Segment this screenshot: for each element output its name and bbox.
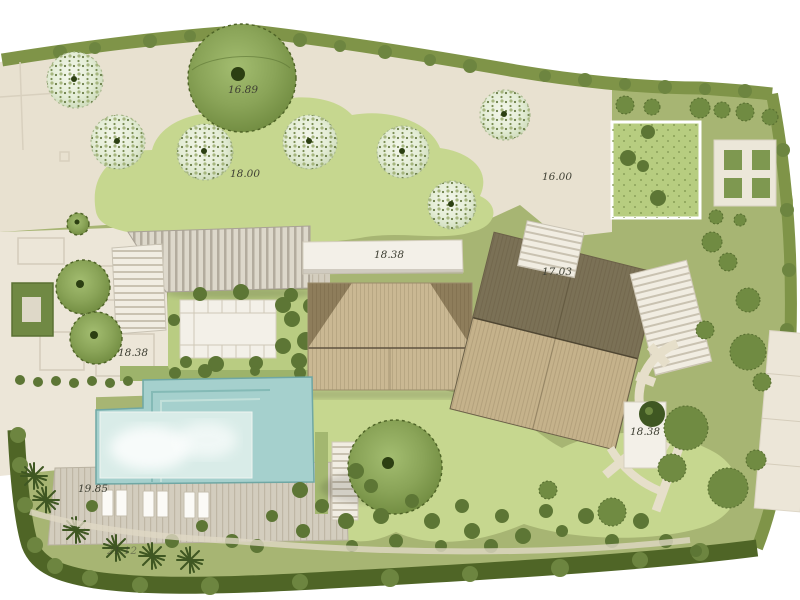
elevation-label-upper-lawn: 18.00	[230, 168, 260, 180]
square-planter	[12, 283, 53, 336]
specimen-tree-north	[188, 24, 296, 132]
site-plan-drawing: 16.89 18.00 16.00 18.38 17.03 18.38 18.3…	[0, 0, 800, 600]
pergola-steps	[112, 244, 166, 334]
courtyard-seating	[180, 300, 276, 358]
elevation-label-west-court: 18.38	[118, 347, 148, 359]
main-house-roof	[308, 283, 472, 399]
parterre-garden	[714, 140, 776, 206]
elevation-label-gravel-court: 16.00	[542, 171, 572, 183]
elevation-label-south-path: 21.12	[106, 545, 137, 557]
elevation-label-stair-landing: 17.03	[542, 266, 572, 278]
lawn-square-garden	[612, 122, 700, 218]
elevation-label-north-terrace: 18.38	[374, 249, 404, 261]
elevation-label-pool-deck: 19.85	[78, 483, 108, 495]
elevation-label-east-terrace: 18.38	[630, 426, 660, 438]
elevation-label-big-tree: 16.89	[228, 84, 258, 96]
site-plan: 16.89 18.00 16.00 18.38 17.03 18.38 18.3…	[0, 0, 800, 600]
